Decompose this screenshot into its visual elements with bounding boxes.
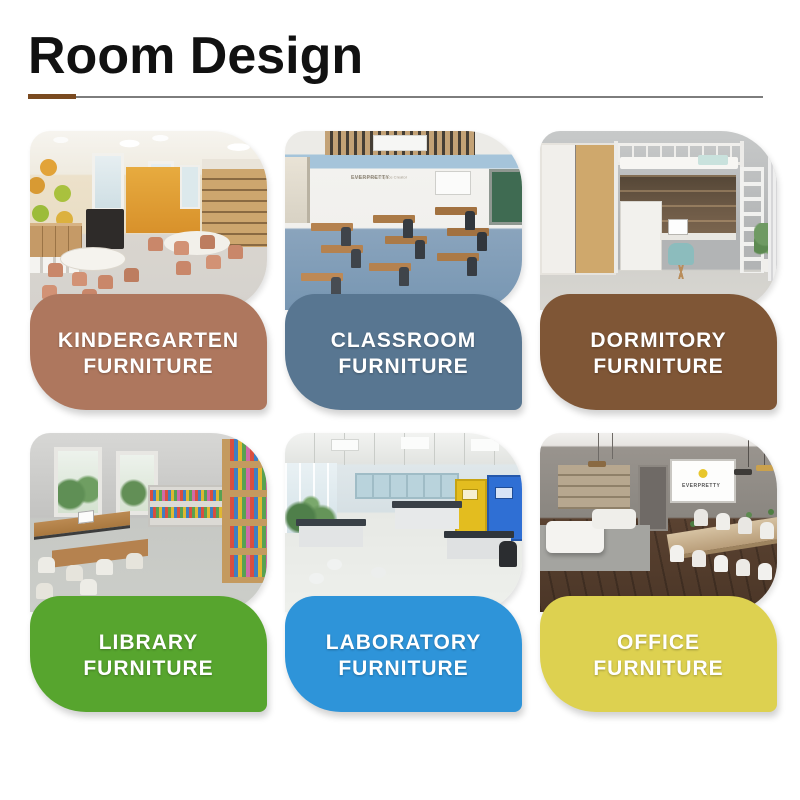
kindergarten-room-photo	[30, 131, 267, 310]
card-library-furniture[interactable]: LIBRARY FURNITURE	[30, 433, 267, 712]
category-line1: CLASSROOM	[331, 328, 477, 354]
laptop	[668, 219, 688, 235]
room-card-grid: KINDERGARTEN FURNITURE EVERPRETTY Furnit…	[30, 131, 777, 712]
category-line1: LABORATORY	[326, 630, 481, 656]
card-classroom-furniture[interactable]: EVERPRETTY Furniture Maker, Space Creato…	[285, 131, 522, 410]
title-underline-accent	[28, 94, 76, 99]
white-chairs	[38, 557, 55, 573]
window	[92, 153, 124, 211]
pendant-lamps	[588, 461, 606, 467]
piano	[86, 209, 124, 249]
category-line1: DORMITORY	[590, 328, 726, 354]
lab-bench-tops	[296, 519, 366, 526]
kids-chairs	[48, 263, 63, 277]
lab-bench-bodies	[299, 525, 363, 547]
student-chairs	[341, 227, 351, 246]
category-line2: FURNITURE	[593, 656, 723, 682]
door	[638, 465, 668, 531]
pendant-cables	[598, 433, 599, 463]
card-kindergarten-furniture[interactable]: KINDERGARTEN FURNITURE	[30, 131, 267, 410]
blue-safety-cabinet	[487, 475, 522, 541]
projector-screen: EVERPRETTY	[670, 459, 736, 503]
window	[180, 165, 200, 209]
screen-logo-text: EVERPRETTY	[682, 483, 720, 489]
white-cabinet	[620, 201, 662, 271]
ceiling-panel	[373, 135, 427, 151]
category-line1: OFFICE	[617, 630, 700, 656]
category-line2: FURNITURE	[338, 656, 468, 682]
laboratory-room-photo	[285, 433, 522, 612]
card-dormitory-furniture[interactable]: DORMITORY FURNITURE	[540, 131, 777, 410]
table-plants	[690, 521, 696, 527]
category-line2: FURNITURE	[83, 354, 213, 380]
office-chair	[499, 541, 517, 567]
window	[285, 157, 310, 223]
page-header: Room Design	[28, 30, 772, 100]
library-room-photo	[30, 433, 267, 612]
category-line2: FURNITURE	[83, 656, 213, 682]
title-underline	[28, 94, 772, 100]
page-title: Room Design	[28, 30, 772, 82]
white-sofa	[592, 509, 636, 529]
conference-chairs	[670, 545, 684, 562]
category-line1: LIBRARY	[99, 630, 199, 656]
card-office-furniture[interactable]: EVERPRETTY OFFICE FURNITURE	[540, 433, 777, 712]
pillow	[698, 155, 728, 165]
round-kids-tables	[60, 247, 126, 271]
tall-bookshelf	[222, 439, 267, 583]
tray-shelf-unit	[202, 159, 267, 247]
curtain	[768, 131, 777, 281]
card-laboratory-furniture[interactable]: LABORATORY FURNITURE	[285, 433, 522, 712]
overhead-cabinets	[355, 473, 459, 499]
category-label-panel: DORMITORY FURNITURE	[540, 294, 777, 410]
wall-frame	[435, 171, 471, 195]
wardrobe	[540, 143, 616, 275]
category-label-panel: LIBRARY FURNITURE	[30, 596, 267, 712]
category-label-panel: KINDERGARTEN FURNITURE	[30, 294, 267, 410]
green-chalkboard	[489, 169, 522, 225]
logo-dot	[699, 469, 708, 478]
category-label-panel: CLASSROOM FURNITURE	[285, 294, 522, 410]
dormitory-room-photo	[540, 131, 777, 310]
low-bookshelf	[148, 485, 224, 527]
window-with-trees	[54, 447, 102, 517]
chair-legs	[670, 265, 692, 279]
lab-stools	[327, 559, 342, 570]
category-line2: FURNITURE	[338, 354, 468, 380]
category-line1: KINDERGARTEN	[58, 328, 239, 354]
yellow-safety-cabinet	[455, 479, 487, 539]
category-label-panel: OFFICE FURNITURE	[540, 596, 777, 712]
classroom-room-photo: EVERPRETTY Furniture Maker, Space Creato…	[285, 131, 522, 310]
office-room-photo: EVERPRETTY	[540, 433, 777, 612]
ceiling-lights	[331, 439, 359, 451]
laptop	[78, 510, 94, 524]
title-underline-line	[76, 96, 763, 98]
category-line2: FURNITURE	[593, 354, 723, 380]
category-label-panel: LABORATORY FURNITURE	[285, 596, 522, 712]
wall-letter-circles	[40, 159, 57, 176]
teal-chair	[668, 243, 694, 265]
wall-shelving	[558, 465, 630, 509]
